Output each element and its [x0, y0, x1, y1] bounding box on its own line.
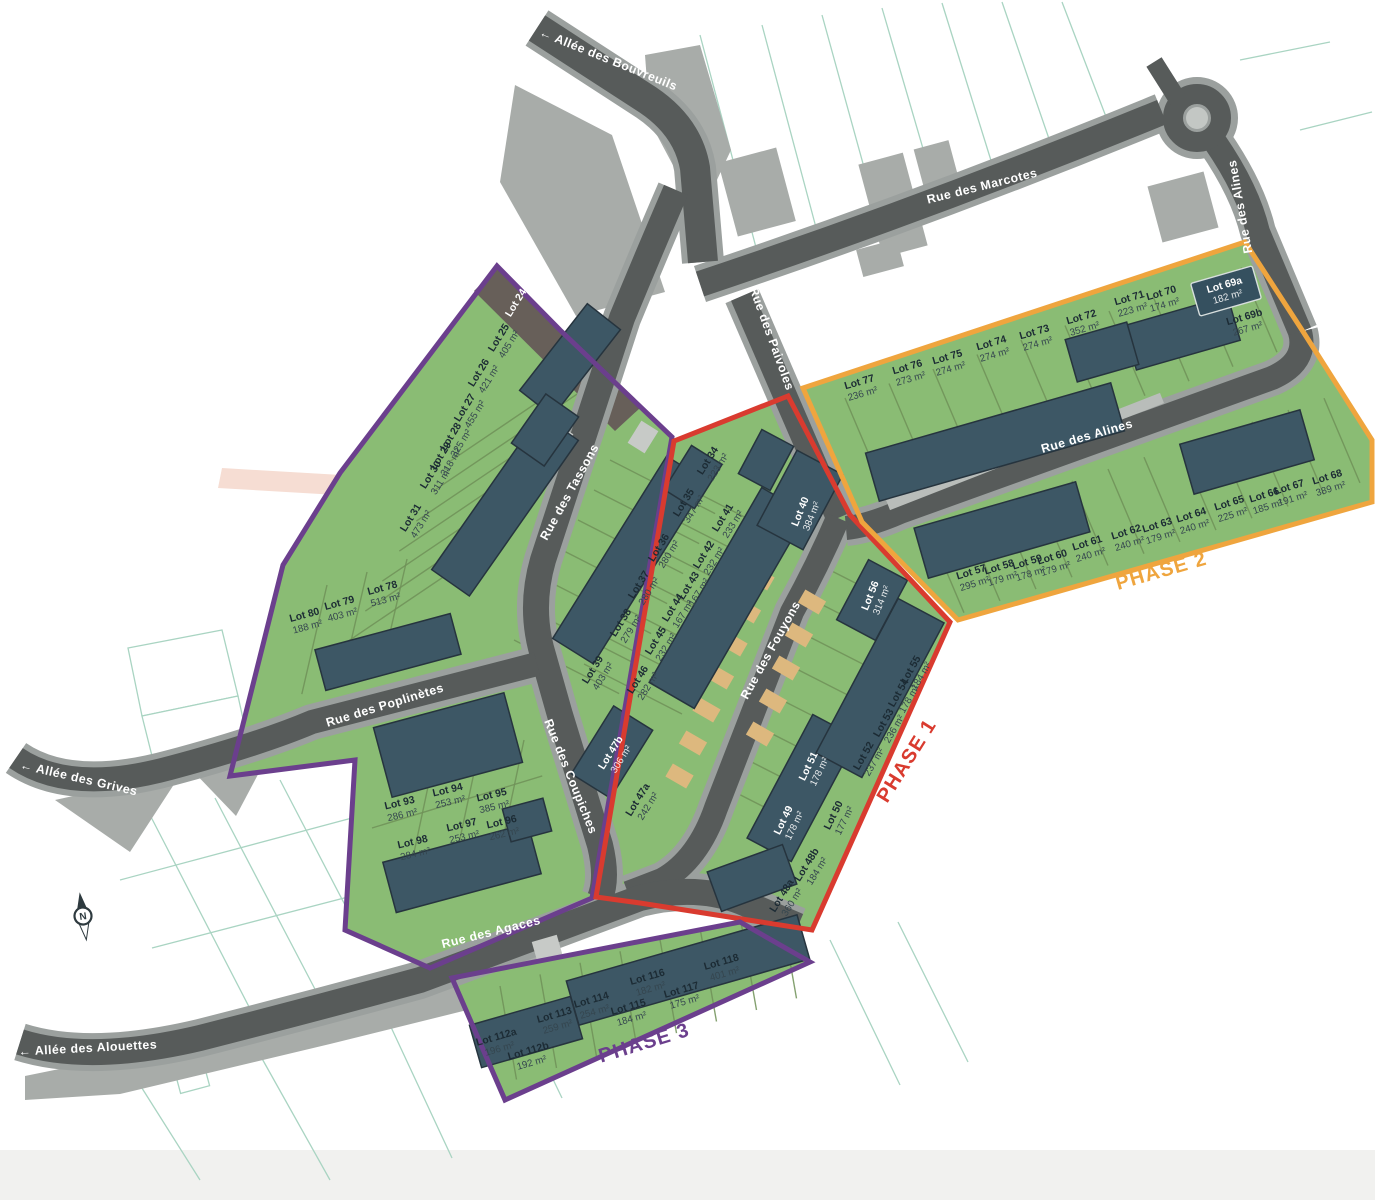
- bottom-band: [0, 1150, 1375, 1200]
- north-label: N: [79, 911, 88, 923]
- subdivision-map: N← Allée des BouvreuilsRue des MarcotesR…: [0, 0, 1375, 1200]
- site-plan-canvas: N← Allée des BouvreuilsRue des MarcotesR…: [0, 0, 1375, 1200]
